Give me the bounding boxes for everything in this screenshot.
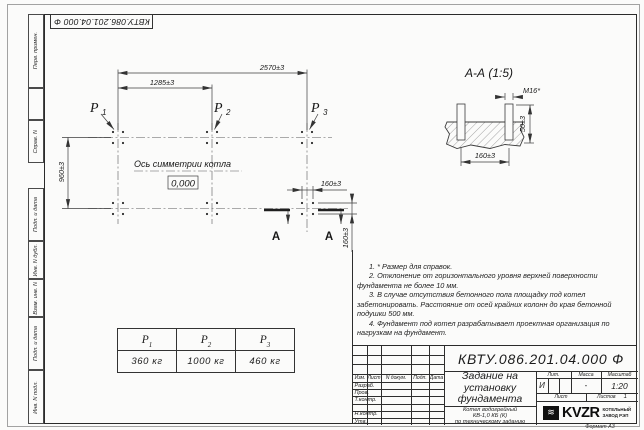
load-value-p3: 460 кг	[236, 351, 295, 373]
company-logo: ≋ KVZR КОТЕЛЬНЫЙ ЗАВОД РЭП	[536, 401, 638, 424]
load-table-header-row: P1 P2 P3	[118, 329, 295, 351]
load-value-p1: 360 кг	[118, 351, 177, 373]
margin-label: Инв. N подл.	[33, 381, 39, 414]
sheets-value: 1	[624, 394, 627, 400]
sign-row-nkontr: Н.контр.	[353, 411, 383, 418]
note-2: 2. Отклонение от горизонтального уровня …	[357, 271, 633, 290]
document-number: КВТУ.086.201.04.000 Ф	[444, 346, 638, 371]
margin-label: Справ. N	[33, 130, 39, 153]
note-3: 3. В случае отсутствия бетонного пола пл…	[357, 290, 633, 318]
margin-label: Инв. N дубл.	[33, 244, 39, 276]
format-note: Формат А3	[560, 424, 640, 430]
drawing-sheet: Перв. примен. Справ. N Подп. и дата Инв.…	[0, 0, 644, 430]
margin-cell-blank	[28, 88, 44, 120]
lit-value: И	[536, 378, 548, 393]
change-col-ndocum: N докум.	[381, 374, 411, 382]
sign-row-tkontr: Т.контр.	[353, 396, 383, 403]
sign-row-prov: Пров.	[353, 389, 383, 396]
margin-cell-inv-dubl: Инв. N дубл.	[28, 241, 44, 279]
document-title: Задание на установку фундамента	[444, 371, 536, 406]
change-col-list: Лист	[367, 374, 381, 382]
margin-cell-podp-data-1: Подп. и дата	[28, 188, 44, 241]
lit-label: Лит.	[536, 371, 571, 378]
sheet-label: Лист	[536, 393, 586, 401]
load-table-header-p2: P2	[177, 329, 236, 351]
sheets-cell: Листов 1	[586, 393, 638, 401]
kvzr-logo-icon: ≋	[543, 406, 559, 420]
note-4: 4. Фундамент под котел разрабатывает про…	[357, 319, 633, 338]
mass-value: -	[571, 378, 601, 393]
scale-value: 1:20	[601, 378, 638, 393]
margin-label: Подп. и дата	[33, 197, 39, 232]
margin-label: Перв. примен.	[33, 32, 39, 69]
sheets-label: Листов	[597, 394, 616, 400]
margin-cell-perv-primen: Перв. примен.	[28, 14, 44, 88]
margin-cell-vzam-inv: Взам. инв. N	[28, 279, 44, 317]
kvzr-logo-caption: КОТЕЛЬНЫЙ ЗАВОД РЭП	[602, 407, 631, 418]
top-corner-stamp: КВТУ.086.201.04.000 Ф	[50, 14, 153, 29]
margin-cell-sprav-n: Справ. N	[28, 120, 44, 163]
kvzr-logo-text: KVZR	[562, 405, 599, 421]
technical-notes: 1. * Размер для справок. 2. Отклонение о…	[357, 262, 633, 338]
change-col-data: Дата	[429, 374, 444, 382]
scale-label: Масштаб	[601, 371, 638, 378]
title-block: Изм. Лист N докум. Подп. Дата Разраб. Пр…	[352, 345, 637, 424]
load-value-p2: 1000 кг	[177, 351, 236, 373]
margin-label: Подп. и дата	[33, 326, 39, 361]
load-table-value-row: 360 кг 1000 кг 460 кг	[118, 351, 295, 373]
load-table-header-p1: P1	[118, 329, 177, 351]
load-table-header-p3: P3	[236, 329, 295, 351]
sign-row-utv: Утв.	[353, 418, 383, 425]
change-col-podp: Подп.	[411, 374, 429, 382]
notes-left-line	[352, 250, 353, 345]
margin-cell-podp-data-2: Подп. и дата	[28, 317, 44, 370]
sign-row-razrab: Разраб.	[353, 382, 383, 389]
sign-row-blank	[353, 404, 383, 411]
product-name-line3: по техническому заданию	[444, 419, 536, 425]
mass-label: Масса	[571, 371, 601, 378]
margin-label: Взам. инв. N	[33, 282, 39, 315]
load-table: P1 P2 P3 360 кг 1000 кг 460 кг	[117, 328, 295, 373]
note-1: 1. * Размер для справок.	[357, 262, 633, 271]
top-stamp-number: КВТУ.086.201.04.000 Ф	[54, 17, 150, 27]
margin-cell-inv-podl: Инв. N подл.	[28, 370, 44, 424]
change-col-izm: Изм.	[353, 374, 367, 382]
